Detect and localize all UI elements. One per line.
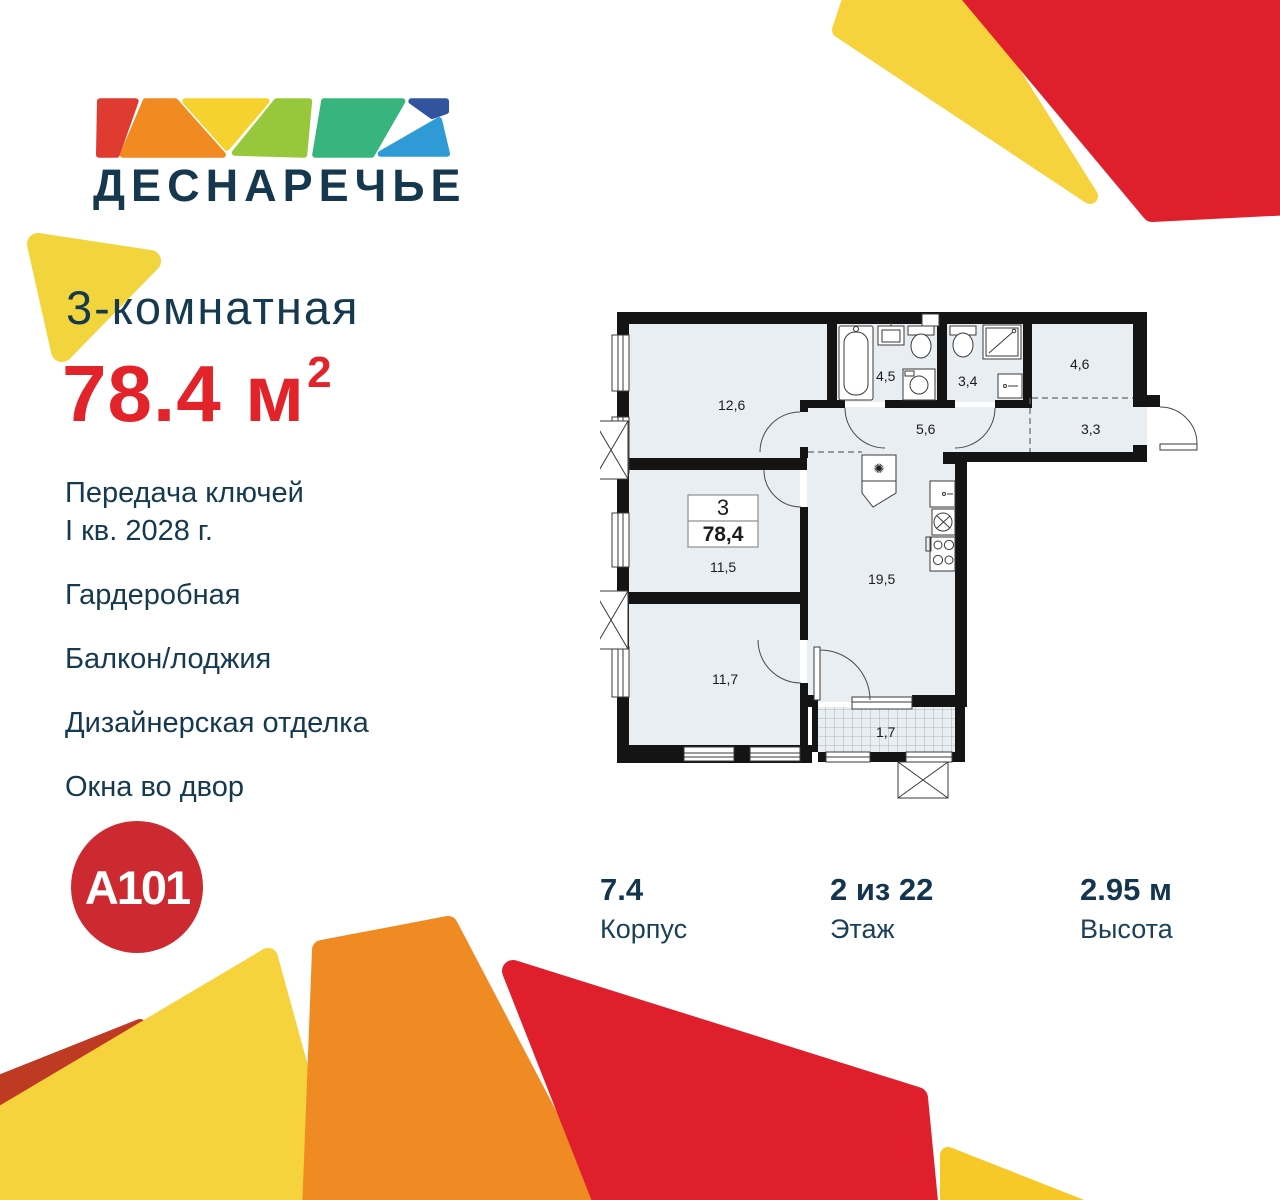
bathtub-icon [839,326,873,400]
window [612,647,629,697]
window [684,747,734,761]
listing-area: 78.4 м2 [62,348,331,440]
brand-name: ДЕСНАРЕЧЬЕ [93,160,467,212]
listing-title: 3-комнатная [66,280,359,335]
room-label-balcony: 1,7 [876,724,896,740]
spec-building-label: Корпус [600,914,687,945]
wall-niche [922,314,939,326]
feature-balcony: Балкон/лоджия [65,640,369,678]
kitchen-sink-icon [930,481,955,507]
window [612,513,629,567]
spec-height-label: Высота [1080,914,1173,945]
orange-shape [312,926,598,1200]
room-label-bathroom: 4,5 [876,368,896,384]
area-superscript: 2 [307,348,332,397]
yellow-triangle-shape [0,958,338,1200]
room-label-bedroom-3: 11,7 [712,671,738,687]
brand-logo [95,97,452,159]
feature-keys-handover: Передача ключей I кв. 2028 г. [65,474,369,550]
spec-building: 7.4 Корпус [600,872,687,945]
developer-logo: A101 [71,821,203,953]
red-pentagon-shape [513,971,928,1200]
feature-list: Передача ключей I кв. 2028 г. Гардеробна… [65,474,369,832]
room-label-bedroom-2: 11,5 [710,559,736,575]
window [612,335,629,391]
area-unit: м [245,349,305,438]
svg-text:✺: ✺ [874,461,885,476]
spec-building-value: 7.4 [600,872,687,908]
yellow-wedge-shape [840,0,1090,196]
entrance-door [1160,407,1197,450]
spec-floor: 2 из 22 Этаж [830,872,933,945]
window [750,747,800,761]
washing-machine-icon [903,369,935,400]
hob-icon [926,537,955,571]
stove-icon [932,509,955,535]
listing-card: { "brand": { "logo_text": "ДЕСНАРЕЧЬЕ", … [0,0,1280,1200]
ac-unit [600,421,628,479]
window [906,752,952,762]
room-label-entry-hall: 3,3 [1081,421,1101,437]
window [852,697,912,709]
ac-unit [600,591,628,649]
room-label-wc: 3,4 [958,373,978,389]
unit-info-box: 3 78,4 [688,495,758,547]
unit-rooms-count: 3 [717,495,729,520]
unit-area: 78,4 [703,523,744,546]
spec-height-value: 2.95 м [1080,872,1173,908]
logo-shape-darkblue [411,101,446,116]
corner-decoration-top-right [840,0,1280,212]
shower-icon [983,325,1021,359]
cabinet-icon [998,374,1022,398]
red-corner-shape [965,0,1280,212]
small-yellow-shape [948,1155,1098,1200]
spec-height: 2.95 м Высота [1080,872,1173,945]
feature-designer-finish: Дизайнерская отделка [65,704,369,742]
spec-floor-label: Этаж [830,914,933,945]
feature-wardrobe: Гардеробная [65,576,369,614]
bottom-decoration [0,926,1098,1200]
window [826,752,870,762]
brick-sliver-shape [0,1026,140,1168]
room-label-wardrobe: 4,6 [1070,356,1090,372]
area-value: 78.4 [62,349,222,438]
room-label-hallway: 5,6 [916,421,936,437]
spec-floor-value: 2 из 22 [830,872,933,908]
floor-plan: ✺ [600,295,1240,805]
room-label-bedroom-1: 12,6 [718,397,745,413]
room-label-kitchen-living: 19,5 [868,571,895,587]
feature-courtyard-windows: Окна во двор [65,768,369,806]
ac-unit [898,762,948,798]
